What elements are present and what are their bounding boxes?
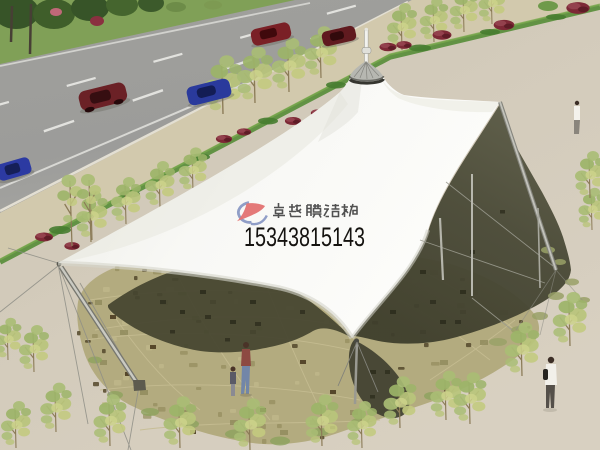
svg-text:15343815143: 15343815143	[244, 222, 365, 252]
